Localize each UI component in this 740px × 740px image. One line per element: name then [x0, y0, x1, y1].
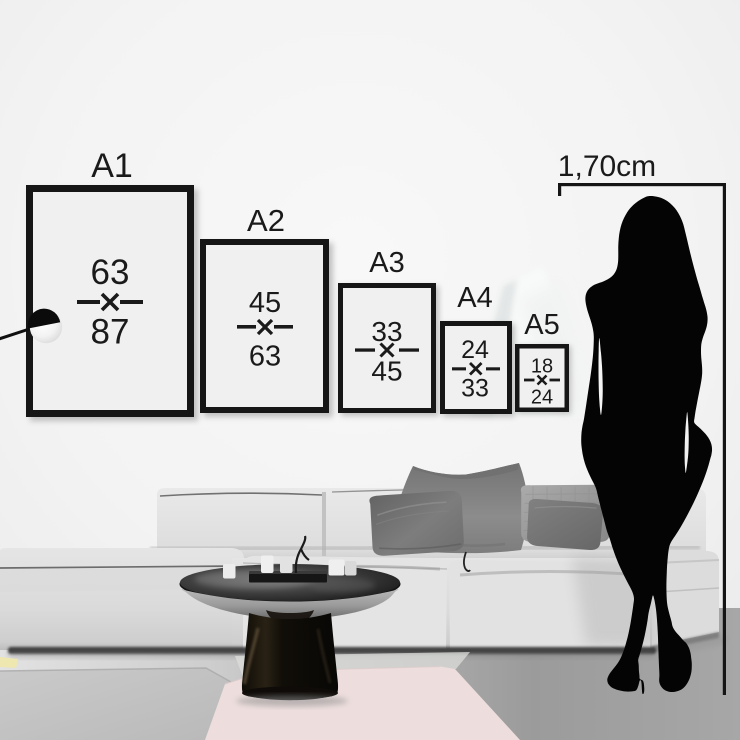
svg-text:18: 18: [531, 356, 553, 378]
svg-text:33: 33: [371, 316, 402, 347]
svg-text:45: 45: [249, 287, 281, 319]
svg-text:A4: A4: [457, 282, 492, 314]
svg-text:24: 24: [461, 336, 489, 364]
svg-text:A2: A2: [247, 203, 285, 238]
svg-text:33: 33: [461, 375, 489, 403]
svg-text:A5: A5: [524, 309, 559, 341]
svg-text:63: 63: [91, 253, 130, 292]
svg-text:87: 87: [91, 313, 130, 352]
svg-text:24: 24: [531, 387, 553, 409]
svg-text:63: 63: [249, 341, 281, 373]
svg-text:1,70cm: 1,70cm: [558, 150, 656, 183]
svg-text:45: 45: [371, 356, 402, 387]
svg-text:A1: A1: [91, 147, 133, 185]
svg-text:A3: A3: [369, 247, 404, 279]
